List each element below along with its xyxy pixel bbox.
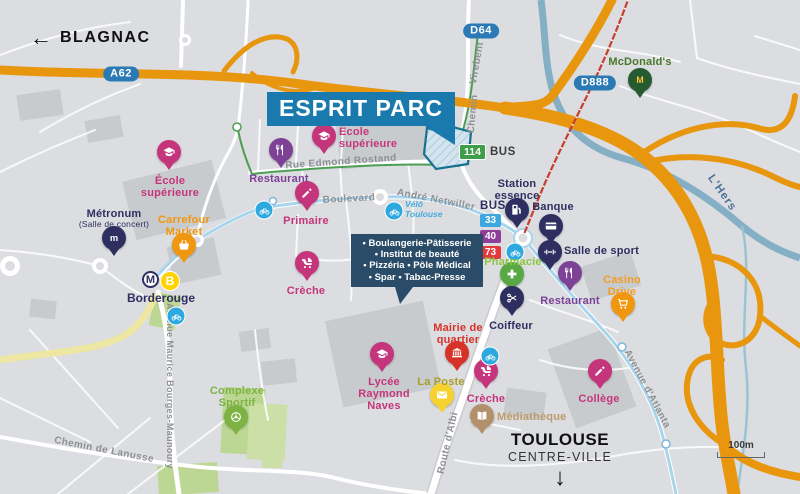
- poi-label-text: La Poste: [417, 376, 464, 388]
- poi-label-text: McDonald's: [608, 56, 671, 68]
- cutlery-icon: [563, 266, 577, 280]
- poi-pin-ecole-superieure-nord[interactable]: [157, 140, 181, 172]
- poi-label-text: Restaurant: [540, 295, 599, 307]
- graduation-cap-icon: [317, 129, 331, 143]
- svg-text:m: m: [110, 233, 118, 243]
- poi-label-banque: Banque: [532, 201, 574, 213]
- poi-pin-metronum[interactable]: m: [102, 226, 126, 258]
- metro-station-label: Borderouge: [127, 291, 195, 305]
- direction-toulouse: TOULOUSE CENTRE-VILLE ↓: [500, 430, 620, 490]
- poi-label-text: Carrefour Market: [158, 214, 210, 238]
- pin-bulb: [269, 138, 293, 162]
- metro-station-borderouge[interactable]: M B: [142, 271, 180, 291]
- cutlery-icon: [274, 143, 288, 157]
- services-line: • Boulangerie-Pâtisserie: [353, 238, 481, 249]
- direction-toulouse-line1: TOULOUSE: [500, 430, 620, 450]
- poi-label-text: Banque: [532, 201, 574, 213]
- sports-ball-icon: [229, 410, 243, 424]
- street-label-route-albi: Route d'Albi: [436, 411, 461, 475]
- street-label-chemin-virebent-chemin: Chemin: [466, 94, 480, 134]
- bus-114-badge: 114: [459, 144, 486, 160]
- shopping-basket-icon: [177, 238, 191, 252]
- dumbbell-icon: [543, 245, 557, 259]
- street-label-avenue-maurice-bourges-maunoury: Avenue Maurice Bourges-Maunoury: [165, 303, 175, 469]
- poi-label-salle-de-sport: Salle de sport: [564, 245, 639, 257]
- pin-bulb: [470, 404, 494, 428]
- poi-label-text: Mairie de quartier: [433, 322, 483, 346]
- graduation-cap-icon: [162, 145, 176, 159]
- road-shield-d888: D888: [574, 76, 616, 91]
- poi-pin-primaire[interactable]: [295, 181, 319, 213]
- pin-bulb: [312, 124, 336, 148]
- pin-bulb: m: [102, 226, 126, 250]
- direction-toulouse-line2: CENTRE-VILLE: [500, 450, 620, 464]
- street-label-rue-edmond-rostand: Rue Edmond Rostand: [285, 153, 397, 172]
- mcdonalds-arches-icon: M: [633, 73, 647, 87]
- poi-label-coiffeur: Coiffeur: [489, 320, 533, 332]
- services-callout: • Boulangerie-Pâtisserie • Institut de b…: [351, 234, 483, 287]
- poi-label-text: Coiffeur: [489, 320, 533, 332]
- street-label-avenue-atlanta: Avenue d'Atlanta: [622, 348, 673, 430]
- bus-lines-legend: BUS 334073: [480, 200, 506, 262]
- poi-label-mairie-de-quartier: Mairie de quartier: [433, 322, 483, 346]
- road-shield-d64: D64: [463, 24, 499, 39]
- poi-label-la-poste: La Poste: [417, 376, 464, 388]
- scale-bar: 100m: [712, 440, 770, 458]
- street-label-boulevard: Boulevard: [322, 192, 375, 206]
- poi-sublabel-text: (Salle de concert): [79, 220, 149, 229]
- poi-label-carrefour-market: Carrefour Market: [158, 214, 210, 238]
- poi-label-casino-drive: Casino Drive: [603, 274, 641, 298]
- bike-station-icon[interactable]: [481, 347, 500, 366]
- poi-label-creche-ouest: Crèche: [287, 285, 326, 297]
- bank-card-icon: [544, 219, 558, 233]
- services-line: • Spar • Tabac-Presse: [353, 272, 481, 283]
- bus-route-badge-40: 40: [480, 230, 501, 243]
- pin-bulb: [157, 140, 181, 164]
- metro-m-icon: M: [142, 271, 159, 288]
- scale-label: 100m: [712, 440, 770, 451]
- envelope-icon: [435, 388, 449, 402]
- poi-pin-lycee-raymond-naves[interactable]: [370, 342, 394, 374]
- services-line: • Institut de beauté: [353, 249, 481, 260]
- letter-m-icon: m: [107, 231, 121, 245]
- poi-label-text: Salle de sport: [564, 245, 639, 257]
- poi-label-primaire: Primaire: [283, 215, 329, 227]
- poi-label-text: École supérieure: [339, 126, 397, 150]
- direction-blagnac-label: BLAGNAC: [60, 29, 151, 47]
- poi-pin-mcdonalds[interactable]: M: [628, 68, 652, 100]
- poi-label-text: Primaire: [283, 215, 329, 227]
- pencil-icon: [593, 364, 607, 378]
- poi-label-complexe-sportif: Complexe Sportif: [210, 385, 264, 409]
- poi-pin-mediatheque[interactable]: [470, 404, 494, 436]
- project-title-banner: ESPRIT PARC: [267, 92, 455, 126]
- poi-label-text: Station essence: [495, 178, 540, 202]
- poi-label-pharmacie: Pharmacie: [484, 256, 541, 268]
- poi-label-text: Complexe Sportif: [210, 385, 264, 409]
- bus-114-stop: 114 BUS: [459, 144, 516, 160]
- poi-pin-complexe-sportif[interactable]: [224, 405, 248, 437]
- velo-toulouse-label: Vélô Toulouse: [405, 200, 442, 220]
- poi-label-text: École supérieure: [141, 175, 199, 199]
- scissors-icon: [505, 291, 519, 305]
- poi-label-text: Pharmacie: [484, 256, 541, 268]
- road-shield-a62: A62: [103, 67, 139, 82]
- poi-label-mediatheque: Médiathèque: [497, 411, 566, 423]
- bus-route-badge-33: 33: [480, 214, 501, 227]
- poi-label-station-essence: Station essence: [495, 178, 540, 202]
- fuel-pump-icon: [510, 203, 524, 217]
- bike-station-icon[interactable]: [385, 202, 404, 221]
- open-book-icon: [475, 409, 489, 423]
- west-arrow-icon: ←: [30, 27, 52, 49]
- poi-label-text: Lycée Raymond Naves: [358, 376, 410, 412]
- velo-line2: Toulouse: [405, 210, 442, 220]
- bike-station-icon[interactable]: [255, 201, 274, 220]
- metro-line-b-icon: B: [160, 271, 180, 291]
- poi-label-mcdonalds: McDonald's: [608, 56, 671, 68]
- poi-label-text: Casino Drive: [603, 274, 641, 298]
- poi-pin-restaurant-ouest[interactable]: [269, 138, 293, 170]
- shopping-cart-icon: [616, 297, 630, 311]
- svg-text:M: M: [636, 75, 643, 85]
- direction-blagnac: ← BLAGNAC: [30, 27, 151, 49]
- pin-bulb: [500, 286, 524, 310]
- poi-pin-college[interactable]: [588, 359, 612, 391]
- poi-pin-restaurant-est[interactable]: [558, 261, 582, 293]
- scale-bar-line: [717, 452, 765, 458]
- poi-label-text: Crèche: [467, 393, 506, 405]
- poi-pin-station-essence[interactable]: [505, 198, 529, 230]
- poi-label-text: Restaurant: [249, 173, 308, 185]
- poi-label-lycee-raymond-naves: Lycée Raymond Naves: [358, 376, 410, 412]
- poi-pin-coiffeur[interactable]: [500, 286, 524, 318]
- town-hall-icon: [450, 346, 464, 360]
- medical-cross-icon: [505, 267, 519, 281]
- pin-bulb: [295, 251, 319, 275]
- south-arrow-icon: ↓: [500, 466, 620, 490]
- river-label: L'Hers: [705, 173, 739, 214]
- poi-pin-creche-ouest[interactable]: [295, 251, 319, 283]
- poi-label-restaurant-ouest: Restaurant: [249, 173, 308, 185]
- pram-icon: [479, 364, 493, 378]
- bus-114-word: BUS: [490, 146, 516, 158]
- pin-bulb: [370, 342, 394, 366]
- poi-label-text: Médiathèque: [497, 411, 566, 423]
- bike-station-icon[interactable]: [167, 307, 186, 326]
- poi-label-ecole-superieure-nord: École supérieure: [141, 175, 199, 199]
- poi-label-ecole-superieure-centre: École supérieure: [339, 126, 397, 150]
- pin-bulb: [539, 214, 563, 238]
- street-label-chemin-de-lanusse: Chemin de Lanusse: [53, 435, 155, 465]
- poi-label-metronum: Métronum(Salle de concert): [79, 208, 149, 229]
- pram-icon: [300, 256, 314, 270]
- pencil-icon: [300, 186, 314, 200]
- street-label-chemin-virebent-virebent: Virebent: [468, 41, 486, 85]
- pin-bulb: [558, 261, 582, 285]
- poi-label-creche-centre: Crèche: [467, 393, 506, 405]
- pin-bulb: [588, 359, 612, 383]
- poi-pin-ecole-superieure-centre[interactable]: [312, 124, 336, 156]
- graduation-cap-icon: [375, 347, 389, 361]
- services-line: • Pizzéria • Pôle Médical: [353, 260, 481, 271]
- poi-label-text: Collège: [578, 393, 619, 405]
- map-canvas: ← BLAGNAC ESPRIT PARC • Boulangerie-Pâti…: [0, 0, 800, 494]
- poi-label-college: Collège: [578, 393, 619, 405]
- poi-label-text: Crèche: [287, 285, 326, 297]
- poi-label-restaurant-est: Restaurant: [540, 295, 599, 307]
- pin-bulb: M: [628, 68, 652, 92]
